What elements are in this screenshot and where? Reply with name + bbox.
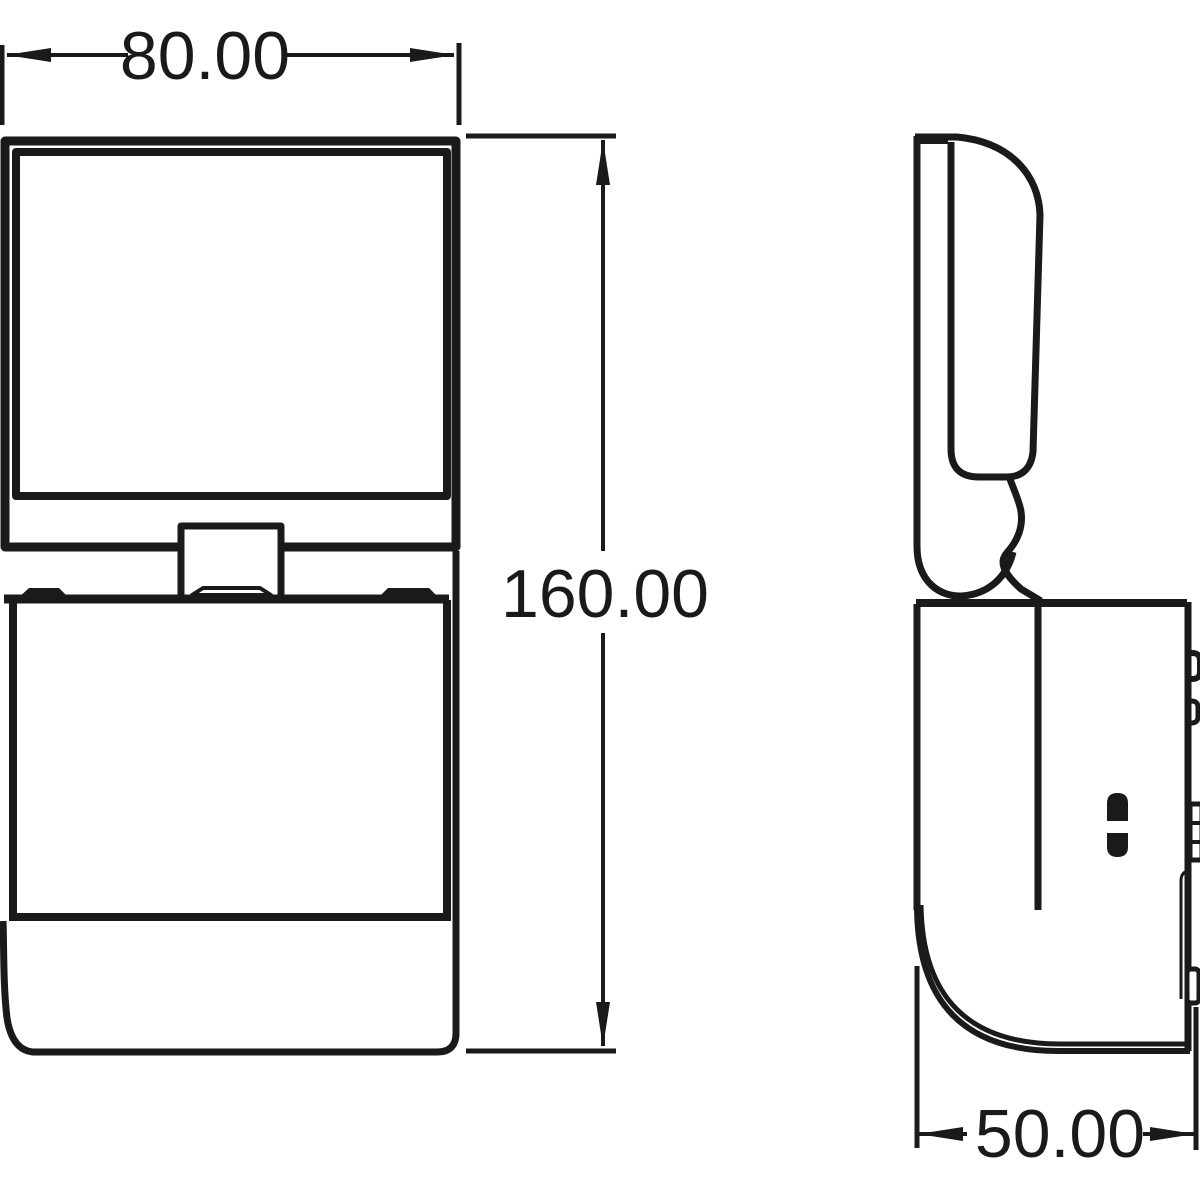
- width-arrowhead-right: [410, 48, 455, 62]
- side-terminal-block: [1190, 804, 1200, 860]
- width-dimension-label: 80.00: [120, 18, 290, 94]
- width-arrowhead-left: [6, 48, 51, 62]
- width-dimension: 80.00: [2, 18, 459, 125]
- height-arrowhead-bottom: [596, 1002, 610, 1047]
- depth-dimension-label: 50.00: [975, 1096, 1145, 1172]
- front-right-tab: [377, 588, 440, 599]
- side-view: [915, 136, 1200, 1051]
- side-mount-plate-outline: [917, 136, 1013, 596]
- side-head-profile: [915, 137, 1040, 477]
- depth-arrowhead-left: [918, 1127, 963, 1141]
- height-dimension: 160.00: [466, 136, 709, 1051]
- technical-drawing-canvas: 80.00 160.00 50.00: [0, 0, 1200, 1200]
- front-head-outer-outline: [5, 141, 456, 547]
- side-vent-slot-top: [1107, 793, 1128, 821]
- side-end-cap-block: [1187, 969, 1199, 1003]
- side-hinge-knuckle: [1003, 479, 1041, 601]
- depth-dimension: 50.00: [917, 966, 1196, 1172]
- front-head-inner-outline: [16, 152, 447, 496]
- front-view: [3, 141, 456, 1052]
- front-left-tab: [17, 588, 70, 599]
- dimension-drawing: 80.00 160.00 50.00: [0, 0, 1200, 1200]
- side-bottom-arc-outer: [917, 905, 1190, 1051]
- height-dimension-label: 160.00: [501, 556, 709, 632]
- front-bracket-wedge: [192, 588, 271, 595]
- height-arrowhead-top: [596, 140, 610, 185]
- depth-arrowhead-right: [1150, 1127, 1195, 1141]
- front-base-outline: [3, 551, 456, 1052]
- side-vent-slot-bottom: [1107, 833, 1128, 857]
